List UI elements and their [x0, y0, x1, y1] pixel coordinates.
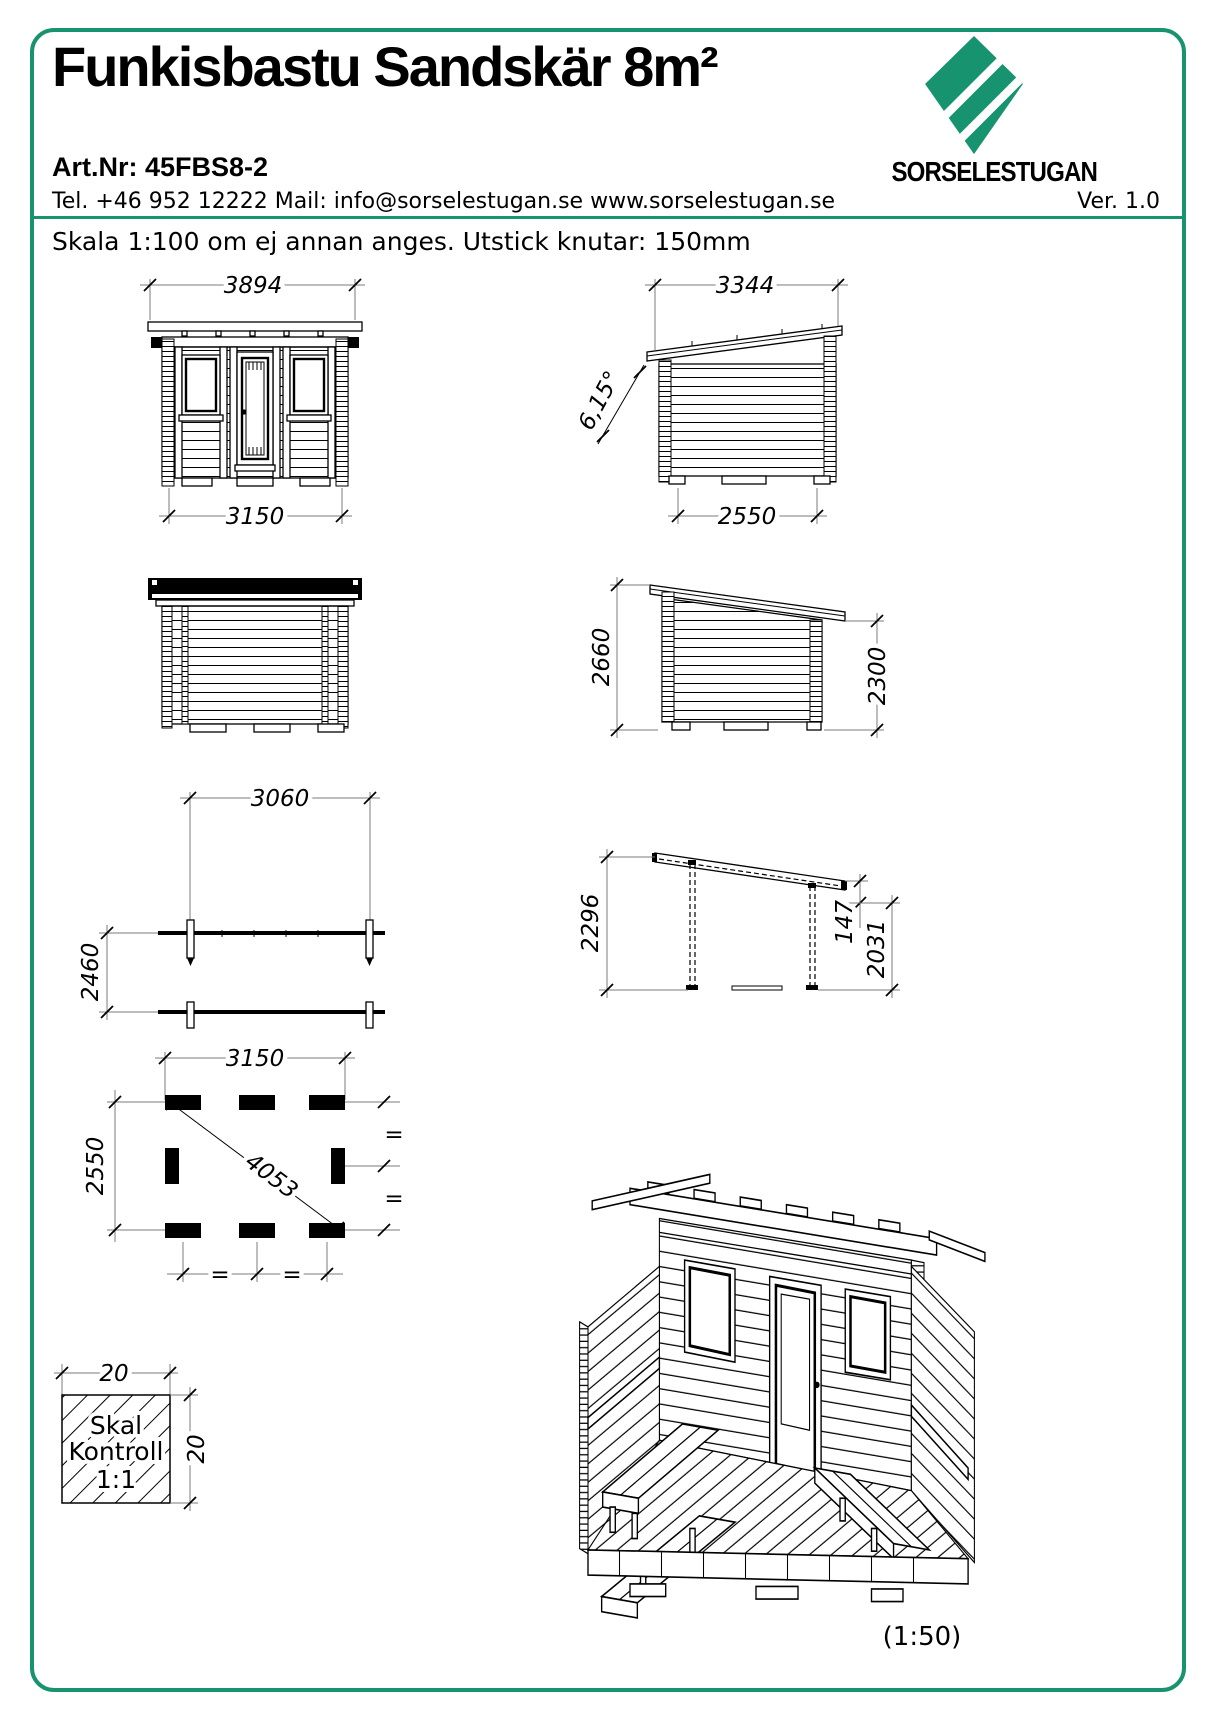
dim-frame-front-height: 2031 — [864, 920, 890, 979]
side-elevation-left: 2660 2300 — [589, 577, 891, 738]
front-elevation: 3894 — [140, 273, 365, 530]
dim-front-base-width: 3150 — [226, 504, 285, 530]
iso-corner-logs-left — [580, 1322, 588, 1554]
iso-window-left — [685, 1260, 735, 1362]
brand-logo-icon — [922, 36, 1026, 156]
page-title: Funkisbastu Sandskär 8m² — [52, 34, 717, 99]
back-wall — [162, 606, 348, 724]
equal-mark: = — [384, 1122, 403, 1148]
dim-side2-low: 2300 — [824, 613, 891, 738]
back-fascia — [156, 600, 354, 606]
dim-scale-check-width: 20 — [99, 1361, 128, 1387]
technical-drawings: 3894 — [32, 252, 1186, 1722]
scale-check-line1: Skal — [90, 1411, 142, 1440]
dim-plan-inner-width: 3060 — [251, 786, 310, 812]
dim-side-base: 2550 — [668, 488, 827, 530]
floor-plan: 3060 2460 — [78, 786, 385, 1028]
front-door — [235, 352, 275, 471]
brand-name: SORSELESTUGAN — [891, 156, 1056, 188]
dim-roof-angle-value: 6,15° — [574, 367, 626, 435]
equal-mark: = — [210, 1262, 229, 1288]
brand-logo: SORSELESTUGAN — [878, 36, 1070, 188]
perspective-view — [580, 1174, 985, 1618]
dim-frame-beam: 147 — [832, 900, 858, 944]
dim-side2-high: 2660 — [589, 577, 658, 738]
scale-check: 20 Skal Kontroll 1:1 20 — [54, 1361, 210, 1511]
foundation-equal-right: = = — [345, 1096, 404, 1236]
iso-roof-board-right — [929, 1231, 985, 1261]
iso-foundation — [588, 1550, 968, 1602]
dim-plan-depth: 2460 — [78, 925, 158, 1020]
dim-plan-inner-depth: 2460 — [78, 943, 104, 1002]
door-threshold — [235, 465, 275, 471]
side2-wall — [662, 598, 822, 722]
front-roof — [148, 322, 362, 331]
plan-bottom-posts — [187, 1002, 373, 1028]
dim-foundation-depth: 2550 — [83, 1137, 109, 1196]
door-handle — [241, 409, 246, 414]
dim-scale-check-h: 20 — [170, 1387, 210, 1511]
front-window-left — [179, 355, 223, 421]
dim-side-roof-depth: 3344 — [716, 273, 775, 299]
article-number: Art.Nr: 45FBS8-2 — [52, 152, 268, 183]
dim-scale-check-height: 20 — [184, 1434, 210, 1463]
dim-front-base: 3150 — [159, 488, 352, 530]
iso-door — [770, 1276, 821, 1483]
frame-section: 2296 147 2031 — [578, 849, 900, 998]
dim-foundation-width: 3150 — [226, 1046, 285, 1072]
dim-frame-back: 2296 — [578, 849, 688, 998]
back-elevation — [148, 578, 362, 732]
frame-roof-beam — [655, 853, 845, 890]
dim-foundation-diagonal: 4053 — [166, 1098, 344, 1234]
side-foundation-blocks — [669, 476, 830, 484]
dim-side2-height-low: 2300 — [865, 647, 891, 706]
contact-info: Tel. +46 952 12222 Mail: info@sorselestu… — [52, 189, 835, 214]
version-label: Ver. 1.0 — [1077, 189, 1160, 214]
iso-door-handle — [814, 1382, 819, 1389]
dim-plan-width: 3060 — [180, 786, 380, 928]
dim-frame-back-height: 2296 — [578, 894, 604, 953]
dim-front-roof-width: 3894 — [224, 273, 283, 299]
side2-foundation-blocks — [672, 722, 821, 730]
dim-foundation-diagonal-value: 4053 — [240, 1148, 302, 1204]
dim-roof-angle: 6,15° — [574, 365, 646, 444]
frame-floor-slab — [732, 986, 782, 990]
dim-foundation-depth: 2550 — [83, 1090, 165, 1242]
foundation-plan: 3150 2550 4053 — [83, 1046, 404, 1288]
perspective-scale-label: (1:50) — [883, 1622, 962, 1652]
front-roof-battens — [156, 331, 354, 336]
equal-mark: = — [282, 1262, 301, 1288]
frame-front-wall — [806, 883, 818, 990]
front-foundation-blocks — [182, 478, 330, 486]
iso-window-right — [845, 1289, 890, 1380]
dim-side-base-depth: 2550 — [718, 504, 777, 530]
front-window-right — [287, 355, 331, 421]
dim-side2-height-high: 2660 — [589, 628, 615, 687]
drawing-sheet: Funkisbastu Sandskär 8m² SORSELESTUGAN A… — [0, 0, 1218, 1722]
back-foundation-blocks — [190, 724, 344, 732]
frame-back-wall — [686, 860, 698, 990]
scale-check-line3: 1:1 — [96, 1465, 136, 1494]
front-header-band — [162, 337, 348, 347]
side-elevation-right: 3344 6,15° — [574, 273, 848, 530]
foundation-equal-bottom: = = — [167, 1242, 343, 1288]
equal-mark: = — [384, 1186, 403, 1212]
scale-check-line2: Kontroll — [68, 1437, 163, 1466]
plan-top-posts — [187, 920, 373, 966]
header-divider — [34, 216, 1182, 219]
side-wall — [659, 364, 836, 476]
dim-foundation-width: 3150 — [155, 1046, 355, 1100]
dim-front-roof: 3894 — [140, 273, 365, 320]
dim-frame-front: 2031 — [818, 895, 900, 998]
